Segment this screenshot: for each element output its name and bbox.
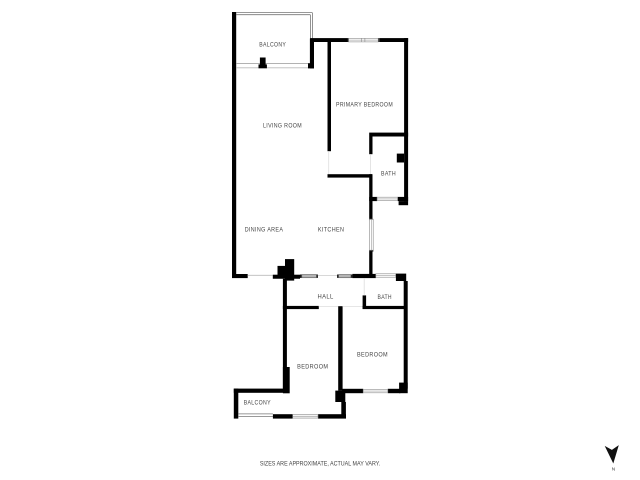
svg-text:DINING AREA: DINING AREA bbox=[245, 226, 284, 233]
svg-text:BATH: BATH bbox=[378, 294, 392, 301]
svg-text:HALL: HALL bbox=[318, 294, 334, 301]
svg-text:BEDROOM: BEDROOM bbox=[357, 351, 388, 358]
svg-text:BATH: BATH bbox=[381, 170, 396, 177]
svg-text:BALCONY: BALCONY bbox=[244, 400, 272, 407]
svg-text:SIZES ARE APPROXIMATE, ACTUAL: SIZES ARE APPROXIMATE, ACTUAL MAY VARY. bbox=[260, 461, 381, 468]
svg-text:KITCHEN: KITCHEN bbox=[318, 226, 344, 233]
svg-text:BEDROOM: BEDROOM bbox=[297, 363, 328, 370]
svg-text:LIVING ROOM: LIVING ROOM bbox=[263, 123, 302, 130]
svg-text:BALCONY: BALCONY bbox=[259, 42, 286, 49]
svg-text:PRIMARY BEDROOM: PRIMARY BEDROOM bbox=[336, 102, 393, 109]
svg-text:N: N bbox=[612, 467, 615, 472]
